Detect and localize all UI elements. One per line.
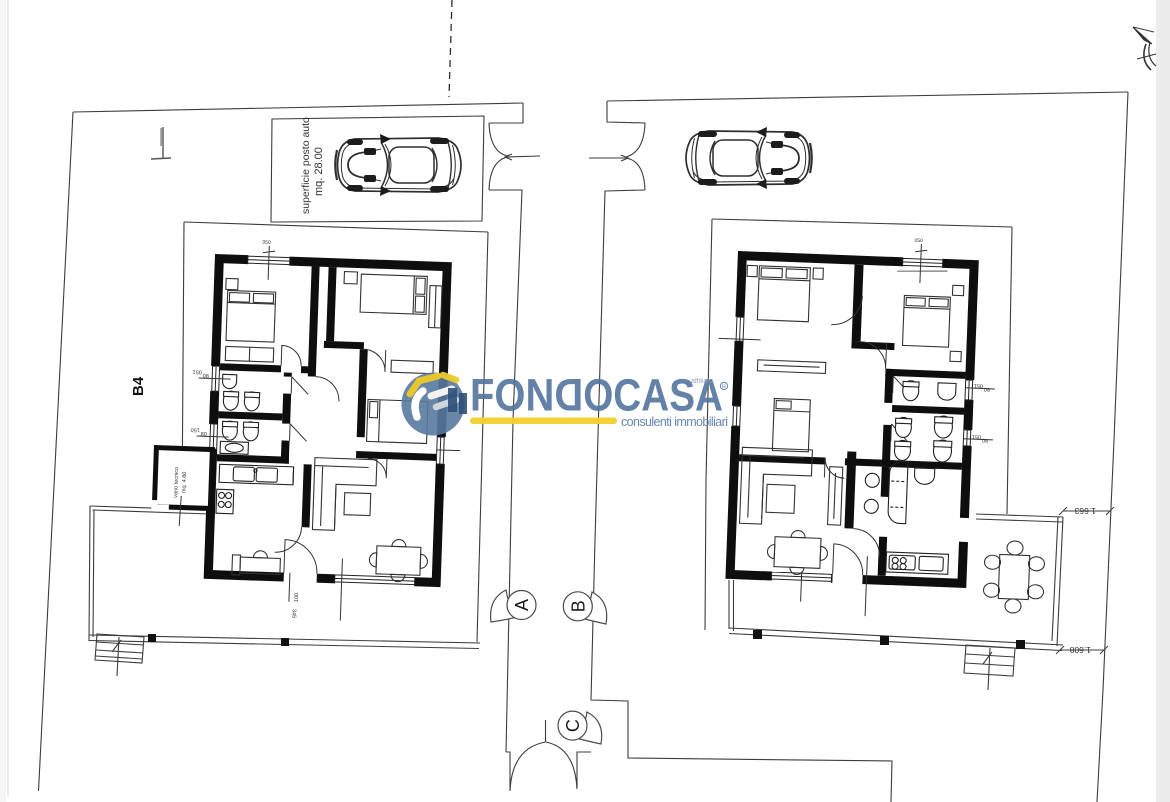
svg-text:051: 051	[974, 382, 983, 388]
svg-text:R: R	[722, 385, 726, 391]
svg-text:superficie posto auto: superficie posto auto	[300, 117, 312, 214]
svg-text:1.663: 1.663	[1074, 506, 1096, 516]
svg-text:D: D	[554, 370, 583, 421]
svg-text:08: 08	[203, 374, 209, 380]
svg-text:80: 80	[201, 432, 207, 438]
svg-text:08: 08	[984, 388, 990, 394]
svg-text:050: 050	[262, 240, 271, 246]
svg-text:mq. 4.80: mq. 4.80	[181, 472, 188, 494]
svg-text:150: 150	[191, 426, 200, 432]
svg-text:vano tecnico: vano tecnico	[173, 467, 180, 498]
svg-text:B4: B4	[130, 376, 147, 396]
svg-text:FON: FON	[470, 370, 554, 421]
svg-text:1.608: 1.608	[1069, 645, 1091, 655]
svg-text:050: 050	[914, 238, 923, 244]
svg-text:affiliato: affiliato	[691, 378, 713, 385]
svg-text:C: C	[563, 719, 583, 732]
svg-text:100: 100	[294, 593, 300, 602]
svg-text:051: 051	[193, 368, 202, 374]
svg-text:B: B	[568, 600, 588, 612]
svg-text:051: 051	[972, 433, 981, 439]
svg-text:A: A	[512, 599, 532, 611]
svg-text:08: 08	[982, 439, 988, 445]
svg-text:mq. 28.00: mq. 28.00	[313, 147, 325, 196]
svg-text:345: 345	[290, 609, 296, 618]
svg-text:consulenti immobiliari: consulenti immobiliari	[621, 415, 728, 429]
